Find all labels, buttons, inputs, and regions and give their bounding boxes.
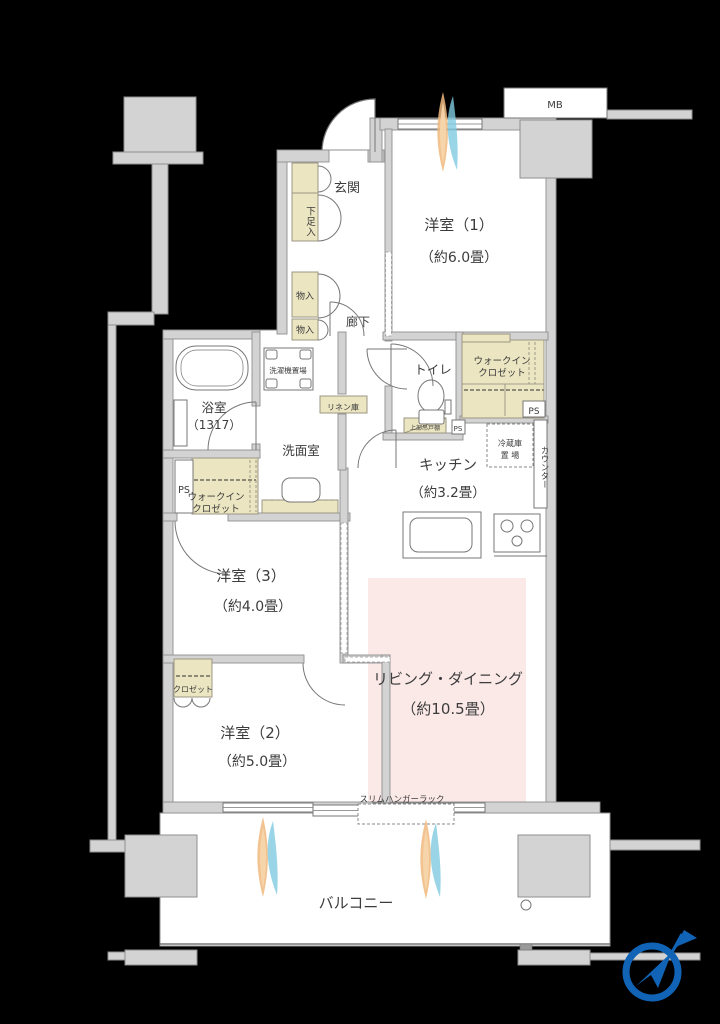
living-dining-area — [368, 578, 526, 806]
storage1-label: 物入 — [296, 290, 314, 302]
room1-size: （約6.0畳） — [420, 250, 498, 266]
toilet-bowl — [418, 380, 444, 412]
wall-segment — [163, 330, 173, 813]
wall-segment — [338, 414, 346, 470]
hanger-label: スリムハンガーラック — [359, 794, 444, 805]
pillar-base — [518, 950, 590, 965]
bathtub-inner — [181, 350, 243, 386]
compass-north-icon — [626, 930, 697, 998]
toilet-tank — [419, 410, 444, 424]
washer-pad — [300, 350, 311, 359]
closet-strip — [462, 334, 510, 342]
boundary-wall — [108, 325, 116, 843]
wall-segment — [385, 386, 392, 440]
pillar — [518, 835, 590, 897]
pillar-base — [125, 950, 197, 965]
counter-label: カウンター — [533, 428, 548, 506]
boundary-wall — [108, 952, 125, 960]
washer-pad — [266, 379, 277, 388]
closet2-label: クロゼット — [173, 684, 213, 694]
boundary-wall — [90, 840, 125, 852]
floorplan-drawing: MB 玄関 物入 物入 廊下 洋室（1） （約6.0畳） トイレ ウォークイン … — [0, 0, 720, 1024]
hanger-rack — [358, 804, 454, 824]
shoe-cabinet — [292, 163, 318, 193]
room3-size: （約4.0畳） — [214, 599, 292, 615]
boundary-wall — [607, 110, 692, 119]
boundary-wall — [108, 312, 154, 325]
washer-pad — [266, 350, 277, 359]
hallway-label: 廊下 — [346, 314, 370, 329]
wall-segment — [277, 150, 287, 334]
boundary-wall — [590, 953, 700, 960]
room1-name: 洋室（1） — [424, 216, 494, 234]
pillar — [125, 835, 197, 897]
room2-size: （約5.0畳） — [218, 754, 296, 770]
pillar-flange — [113, 152, 203, 164]
burner — [512, 536, 522, 546]
wic1-label-line2: クロゼット — [478, 367, 526, 379]
shoe-cabinet-label: 下足入 — [296, 199, 314, 245]
toilet-handle — [445, 400, 451, 414]
wall-segment — [163, 450, 260, 458]
fridge-label-line2: 置 場 — [501, 450, 520, 460]
wall-segment — [252, 332, 260, 406]
balcony-label: バルコニー — [319, 894, 394, 912]
bath-size: （1317） — [187, 418, 242, 432]
mb-label: MB — [547, 100, 563, 111]
kitchen-size: （約3.2畳） — [410, 485, 485, 501]
burner — [501, 520, 513, 532]
genkan-label: 玄関 — [334, 181, 360, 196]
fence-post — [520, 944, 532, 950]
room3-name: 洋室（3） — [216, 567, 286, 585]
wic2-label-line2: クロゼット — [192, 503, 240, 515]
room2-name: 洋室（2） — [220, 724, 290, 742]
wall-segment — [163, 330, 260, 339]
wall-segment — [338, 332, 346, 394]
storage2-label: 物入 — [296, 324, 314, 336]
ps-toilet-label: PS — [454, 425, 463, 433]
entrance-door-arc — [322, 99, 375, 152]
wic1-label-line1: ウォークイン — [473, 356, 530, 367]
kitchen-sink — [410, 518, 472, 552]
wic2-label-line1: ウォークイン — [187, 492, 244, 503]
powder-room-label: 洗面室 — [282, 443, 320, 458]
washer-label: 洗濯機置場 — [269, 365, 307, 375]
living-dining-size: （約10.5畳） — [401, 700, 494, 718]
burner — [521, 520, 533, 532]
balcony-drain — [521, 900, 531, 910]
wall-segment — [383, 433, 463, 440]
fridge-label-line1: 冷蔵庫 — [498, 438, 522, 448]
pillar — [124, 97, 196, 154]
boundary-wall — [152, 164, 168, 314]
upper-cabinet-label: 上部吊戸棚 — [410, 424, 440, 432]
ps-right-label: PS — [528, 407, 539, 417]
pillar — [520, 120, 592, 178]
bath-name: 浴室 — [201, 400, 226, 415]
toilet-label: トイレ — [414, 362, 452, 377]
living-dining-name: リビング・ダイニング — [373, 670, 523, 688]
floorplan-canvas: MB 玄関 物入 物入 廊下 洋室（1） （約6.0畳） トイレ ウォークイン … — [0, 0, 720, 1024]
wall-segment — [277, 150, 329, 162]
bath-ledge — [174, 400, 187, 446]
wash-basin — [282, 478, 320, 502]
linen-label: リネン庫 — [327, 402, 359, 412]
kitchen-name: キッチン — [419, 458, 477, 474]
washer-pad — [300, 379, 311, 388]
wall-segment — [163, 513, 177, 521]
